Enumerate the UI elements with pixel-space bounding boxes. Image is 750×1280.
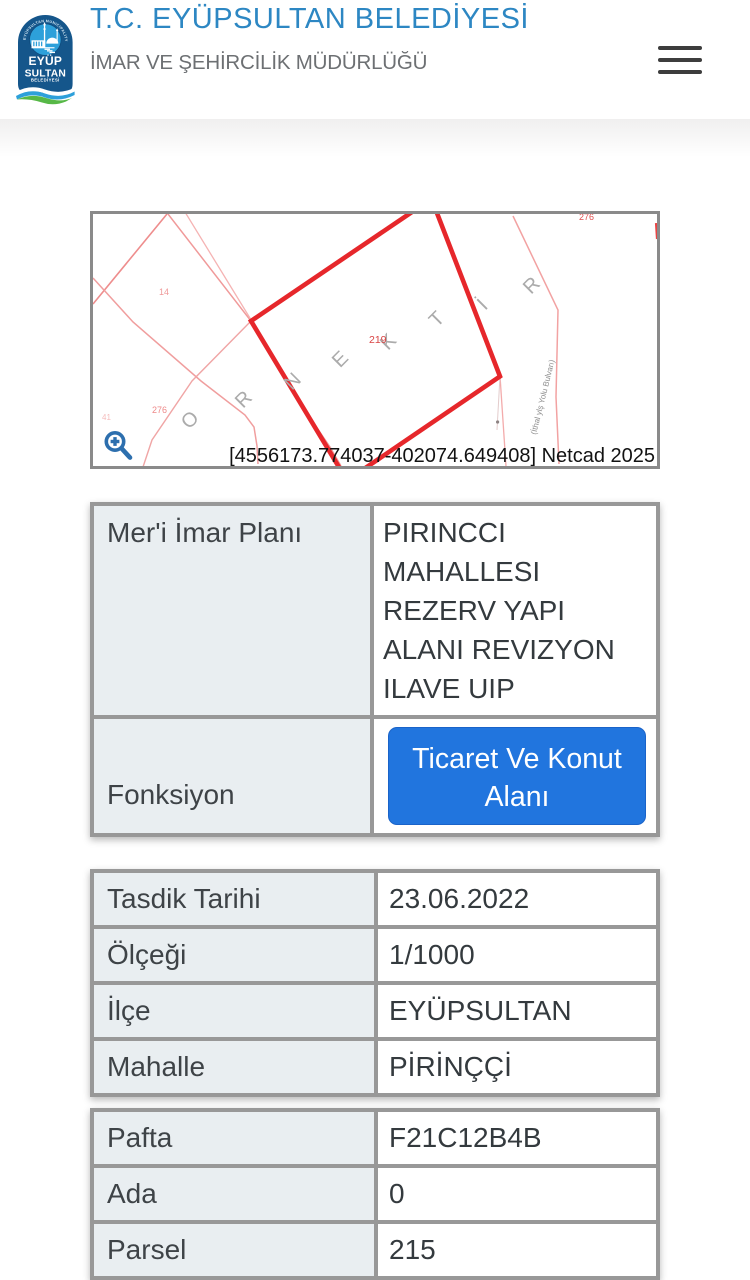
- svg-text:(İthal ylş Yolu Bulvarı): (İthal ylş Yolu Bulvarı): [529, 358, 556, 435]
- svg-text:41: 41: [102, 413, 111, 422]
- svg-text:E: E: [328, 347, 353, 372]
- svg-text:219: 219: [369, 334, 387, 346]
- svg-text:[4556173.774037-402074.649408]: [4556173.774037-402074.649408] Netcad 20…: [229, 445, 655, 466]
- svg-text:276: 276: [579, 214, 594, 222]
- svg-text:T: T: [425, 307, 449, 331]
- svg-text:EYÜP: EYÜP: [29, 53, 62, 68]
- svg-text:O: O: [177, 407, 204, 434]
- svg-text:R: R: [519, 273, 545, 299]
- svg-text:BELEDİYESİ: BELEDİYESİ: [31, 78, 60, 83]
- svg-text:R: R: [231, 387, 257, 413]
- svg-text:276: 276: [152, 405, 167, 415]
- svg-text:14: 14: [159, 287, 169, 297]
